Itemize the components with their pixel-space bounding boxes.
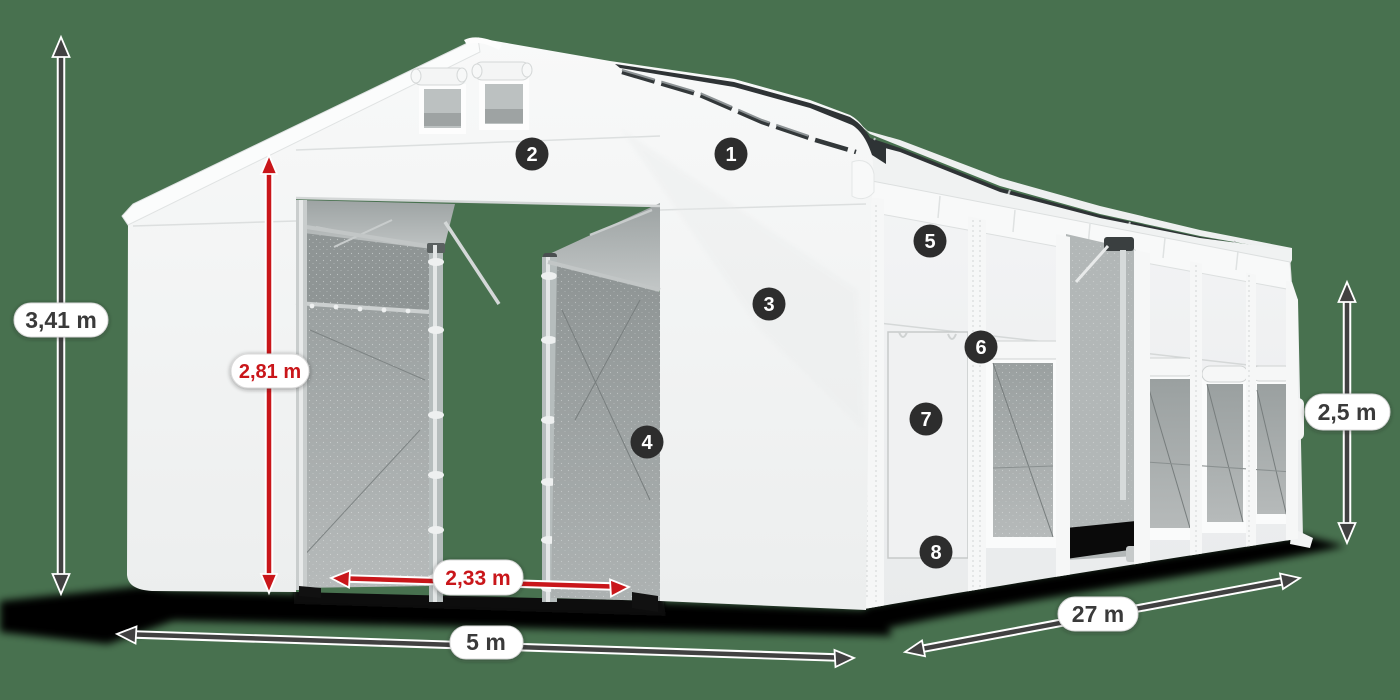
svg-text:3: 3 [763, 294, 774, 316]
svg-text:8: 8 [930, 542, 941, 564]
svg-text:1: 1 [725, 144, 736, 166]
svg-text:5 m: 5 m [466, 629, 506, 655]
svg-text:4: 4 [641, 432, 653, 454]
svg-text:27 m: 27 m [1072, 601, 1124, 627]
svg-text:6: 6 [975, 337, 986, 359]
svg-text:2,81 m: 2,81 m [239, 361, 301, 383]
svg-text:2,5 m: 2,5 m [1318, 399, 1377, 425]
svg-text:2: 2 [526, 144, 537, 166]
svg-text:3,41 m: 3,41 m [25, 307, 97, 333]
svg-text:2,33 m: 2,33 m [445, 567, 510, 590]
svg-text:7: 7 [920, 409, 931, 431]
svg-text:5: 5 [924, 231, 935, 253]
